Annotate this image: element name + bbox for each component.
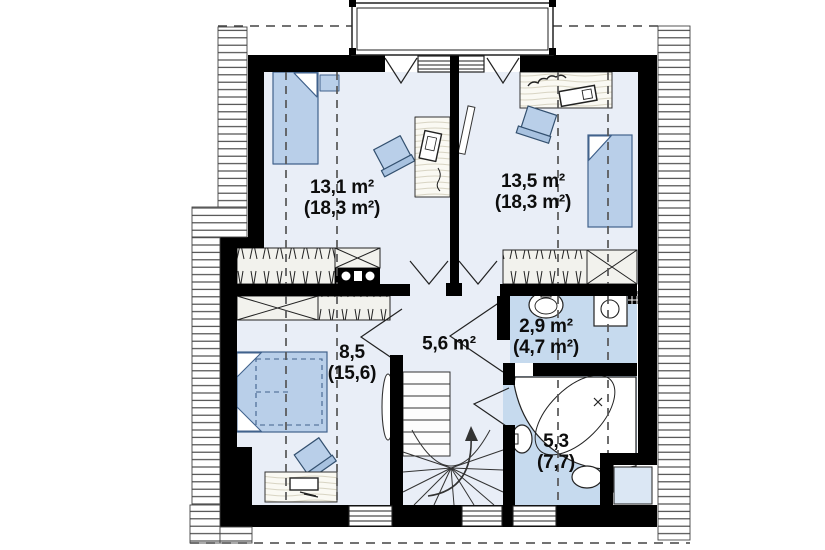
door-gap-floor bbox=[497, 340, 510, 363]
dormer-icon bbox=[349, 0, 556, 55]
wall bbox=[220, 284, 410, 296]
wall bbox=[503, 425, 515, 505]
wall bbox=[248, 55, 264, 237]
washing-machine-icon bbox=[594, 293, 627, 326]
wall bbox=[237, 237, 264, 248]
wall bbox=[450, 48, 459, 296]
hatch-band bbox=[218, 27, 247, 207]
room-area: 13,5 m² bbox=[495, 171, 571, 192]
hatch-band bbox=[192, 237, 220, 505]
wall bbox=[220, 447, 252, 527]
floor-plan-drawing bbox=[0, 0, 825, 550]
wall bbox=[497, 296, 510, 340]
door-gap-floor bbox=[390, 296, 403, 355]
cabinet-icon bbox=[614, 467, 652, 504]
room-label-bedroom-bottom-left: 8,5 (15,6) bbox=[328, 342, 376, 384]
room-label-hallway: 5,6 m² bbox=[422, 334, 476, 355]
wall bbox=[252, 505, 657, 527]
wall bbox=[533, 363, 637, 376]
room-area: 5,3 bbox=[537, 431, 575, 452]
wall bbox=[390, 355, 403, 505]
room-area: 13,1 m² bbox=[304, 177, 380, 198]
hatch-band bbox=[190, 505, 220, 543]
hatch-band bbox=[658, 26, 690, 540]
toilet-icon bbox=[572, 466, 602, 488]
room-area-total: (7,7) bbox=[537, 452, 575, 473]
hatch-band bbox=[192, 207, 247, 237]
wall bbox=[248, 55, 385, 72]
floor-plan: 13,1 m² (18,3 m²) 13,5 m² (18,3 m²) 8,5 … bbox=[0, 0, 825, 550]
hatch-band bbox=[220, 527, 252, 543]
door-gap-floor bbox=[503, 385, 515, 425]
laptop-icon bbox=[290, 478, 318, 490]
room-area-total: (18,3 m²) bbox=[495, 192, 571, 213]
room-label-bedroom-top-left: 13,1 m² (18,3 m²) bbox=[304, 177, 380, 219]
door-gap-floor bbox=[410, 284, 446, 296]
wall bbox=[638, 55, 657, 465]
room-label-bathroom-upper: 2,9 m² (4,7 m²) bbox=[513, 316, 579, 358]
wall bbox=[503, 363, 515, 385]
room-area-total: (15,6) bbox=[328, 363, 376, 384]
room-area: 2,9 m² bbox=[513, 316, 579, 337]
room-area-total: (4,7 m²) bbox=[513, 337, 579, 358]
wall bbox=[500, 284, 637, 296]
wall bbox=[600, 453, 613, 527]
room-label-bathroom-lower: 5,3 (7,7) bbox=[537, 431, 575, 473]
room-area: 8,5 bbox=[328, 342, 376, 363]
door-gap-floor bbox=[462, 284, 500, 296]
wall bbox=[520, 55, 638, 72]
room-label-bedroom-top-right: 13,5 m² (18,3 m²) bbox=[495, 171, 571, 213]
room-area: 5,6 m² bbox=[422, 334, 476, 355]
room-area-total: (18,3 m²) bbox=[304, 198, 380, 219]
